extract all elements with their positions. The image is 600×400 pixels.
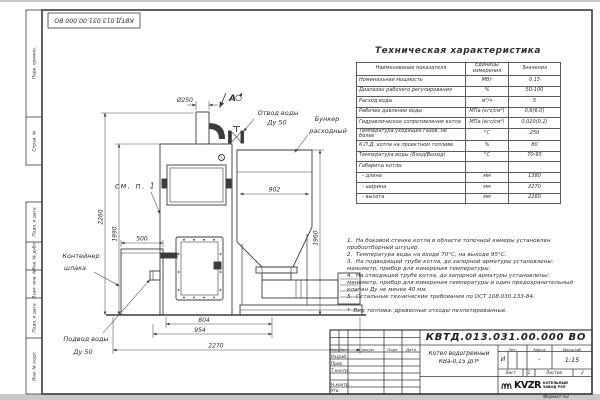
tech-cell: мм bbox=[466, 183, 509, 194]
scale-value: 1:15 bbox=[552, 356, 592, 364]
label-text: Ду 50 bbox=[266, 119, 286, 127]
tech-row: Расход водым³/ч5 bbox=[357, 97, 561, 108]
tech-cell: К.П.Д. котла на проектном топливе bbox=[357, 141, 466, 152]
tech-row: Температура уходящих газов, не более°С25… bbox=[357, 128, 561, 141]
tech-cell: 0,15 bbox=[509, 76, 561, 87]
outlet-valve bbox=[229, 127, 244, 144]
note-line: * Вид топлива: древесные отходы пеллетир… bbox=[347, 308, 585, 315]
stamp-inv-dubl: Инв. № дубл. bbox=[32, 241, 38, 270]
manufacturer-logo: KVZR КОТЕЛЬНЫЙ ЗАВОД РЭП bbox=[500, 377, 592, 393]
sheets-label: Листов bbox=[535, 370, 573, 375]
tech-cell: 2270 bbox=[509, 183, 561, 194]
tech-cell: °С bbox=[466, 151, 509, 162]
dimension-chimney-d250: Ø250 bbox=[176, 97, 218, 110]
lit-value: И bbox=[498, 356, 508, 363]
dimension-height-1990: 1990 bbox=[112, 144, 161, 315]
stamp-podp-data-1: Подп. и дата bbox=[32, 207, 38, 237]
tech-cell: м³/ч bbox=[466, 97, 509, 108]
stamp-podp-data-2: Подп. и дата bbox=[32, 303, 38, 333]
label-text: Отвод воды bbox=[258, 109, 299, 117]
scale-header: Масштаб bbox=[552, 347, 592, 352]
note-line: манометр, прибор для измерения температу… bbox=[347, 266, 585, 273]
tech-header-values: Значения bbox=[509, 63, 561, 76]
tech-row: Гидравлическое сопротивление котлаМПа (к… bbox=[357, 118, 561, 129]
tech-row: Габариты котла: bbox=[357, 162, 561, 173]
note-line: клапан Ду не менее 40 мм. bbox=[347, 287, 585, 294]
label-text: см. п. 1 bbox=[115, 182, 156, 191]
stamp-labels: Перв. примен. Справ. № Подп. и дата Инв.… bbox=[32, 17, 134, 381]
tech-cell: МВт bbox=[466, 76, 509, 87]
drawing-sheet: Перв. примен. Справ. № Подп. и дата Инв.… bbox=[0, 2, 600, 394]
tech-cell: Температура уходящих газов, не более bbox=[357, 128, 466, 141]
tech-header-units: Единицы измерения bbox=[466, 63, 509, 76]
dimension-width-804: 804 bbox=[166, 317, 272, 328]
tech-cell: - длина bbox=[357, 172, 466, 183]
sheet-value: 1 bbox=[523, 370, 535, 375]
tech-cell: МПа (кгс/см²) bbox=[466, 118, 509, 129]
row-label-razrab: Разраб. bbox=[331, 354, 361, 359]
mass-header: Масса bbox=[527, 347, 552, 352]
water-inlet-pipe bbox=[150, 271, 160, 280]
tech-cell bbox=[509, 162, 561, 173]
lit-header: Лит. bbox=[498, 347, 527, 352]
door-latch bbox=[214, 262, 221, 269]
note-line: манометр, прибор для измерения температу… bbox=[347, 280, 585, 287]
col-header-doc: N докум. bbox=[348, 347, 384, 352]
logo-subtitle-2: ЗАВОД РЭП bbox=[543, 385, 568, 389]
auger-feeder bbox=[240, 273, 362, 315]
dimension-text: 1990 bbox=[112, 226, 119, 241]
tech-row: - высотамм2260 bbox=[357, 193, 561, 204]
stamp-sprav: Справ. № bbox=[32, 130, 38, 151]
top-designation-rotated: КВТД.013.031.00.000 ВО bbox=[54, 17, 134, 24]
dimension-text: 804 bbox=[198, 317, 210, 324]
tech-cell: мм bbox=[466, 193, 509, 204]
sheet-label: Лист bbox=[498, 370, 523, 375]
tech-cell: Диапазон рабочего регулирования bbox=[357, 86, 466, 97]
label-text: Контейнер bbox=[62, 252, 99, 260]
note-line: 4. На отводящей трубе котла, до запорной… bbox=[347, 273, 585, 280]
tech-cell: Рабочее давление воды bbox=[357, 107, 466, 118]
dimension-container-500: 500 bbox=[121, 236, 163, 247]
stamp-perv-primen: Перв. примен. bbox=[32, 47, 38, 79]
tech-cell: - ширина bbox=[357, 183, 466, 194]
tech-row: Диапазон рабочего регулирования%50-100 bbox=[357, 86, 561, 97]
tech-cell: % bbox=[466, 86, 509, 97]
dimension-text: Ø250 bbox=[176, 97, 193, 104]
doc-title-line1: Котел водогрейный bbox=[421, 351, 497, 357]
label-see-note-1: см. п. 1 bbox=[115, 182, 160, 215]
conveyor-base bbox=[240, 305, 362, 315]
col-header-list: Лист bbox=[339, 347, 348, 352]
tech-cell: мм bbox=[466, 172, 509, 183]
tech-cell: 5 bbox=[509, 97, 561, 108]
note-line bbox=[347, 301, 585, 308]
note-line: 2. Температура воды на входе 70°С, на вы… bbox=[347, 252, 585, 259]
view-label: А bbox=[228, 94, 236, 104]
note-line: 3. На подводящей трубе котла, до запорно… bbox=[347, 259, 585, 266]
col-header-izm: Изм. bbox=[330, 347, 339, 352]
stamp-vzam-inv: Взам. инв. № bbox=[32, 269, 38, 299]
vent-fitting bbox=[219, 155, 225, 161]
label-text: Подвод воды bbox=[63, 335, 108, 343]
label-text: Ду 50 bbox=[72, 348, 92, 356]
tech-cell: 0,020(0,2) bbox=[509, 118, 561, 129]
title-block-designation: КВТД.013.031.00.000 ВО bbox=[421, 332, 591, 343]
label-water-inlet: Подвод воды Ду 50 bbox=[63, 280, 150, 357]
rotated-symbol-icon bbox=[236, 95, 242, 101]
tech-cell: Температура воды (Вход/Выход) bbox=[357, 151, 466, 162]
tech-cell: 1380 bbox=[509, 172, 561, 183]
row-label-tkontr: Т.контр. bbox=[331, 368, 361, 373]
col-header-podp: Подп. bbox=[384, 347, 402, 352]
tech-cell: 70-95 bbox=[509, 151, 561, 162]
tech-row: К.П.Д. котла на проектном топливе%80 bbox=[357, 141, 561, 152]
format-label: Формат А3 bbox=[520, 395, 592, 400]
boiler-body bbox=[150, 144, 232, 315]
tech-cell: Расход воды bbox=[357, 97, 466, 108]
tech-row: - длинамм1380 bbox=[357, 172, 561, 183]
dimension-height-1960: 1960 bbox=[312, 150, 324, 315]
tech-cell: 0,6(6,0) bbox=[509, 107, 561, 118]
tech-cell bbox=[466, 162, 509, 173]
tech-header-name: Наименование показателя bbox=[357, 63, 466, 76]
label-fuel-hopper: Бункер расходный bbox=[295, 115, 347, 153]
label-text: Бункер bbox=[315, 115, 340, 123]
label-text: расходный bbox=[308, 127, 347, 135]
row-label-nkontr: Н.контр. bbox=[331, 382, 361, 387]
tech-row: Номинальная мощностьМВт0,15 bbox=[357, 76, 561, 87]
mass-value: - bbox=[527, 356, 552, 363]
dimension-text: 500 bbox=[136, 236, 148, 243]
tech-cell: 2260 bbox=[509, 193, 561, 204]
coil-icon bbox=[500, 379, 512, 391]
dimension-text: 1960 bbox=[313, 230, 320, 245]
col-header-data: Дата bbox=[402, 347, 420, 352]
row-label-prov: Пров. bbox=[331, 361, 361, 366]
logo-text: KVZR bbox=[514, 380, 541, 391]
label-slag-container: Контейнер шлака bbox=[62, 252, 119, 286]
sheets-value: 2 bbox=[573, 370, 592, 375]
dimension-text: 954 bbox=[194, 327, 206, 334]
dimension-text: 902 bbox=[269, 187, 281, 194]
row-label-utv: Утв. bbox=[331, 388, 361, 393]
tech-cell: МПа (кгс/см²) bbox=[466, 107, 509, 118]
label-water-outlet: Отвод воды Ду 50 bbox=[244, 109, 299, 132]
tech-characteristics-table: Наименование показателя Единицы измерени… bbox=[356, 62, 561, 204]
tech-cell: Номинальная мощность bbox=[357, 76, 466, 87]
notes-block: 1. На боковой стенке котла в области топ… bbox=[347, 238, 585, 315]
dimension-bunker-902: 902 bbox=[240, 187, 309, 195]
boiler-lower-door bbox=[161, 237, 223, 300]
boiler-top-door bbox=[162, 165, 231, 205]
stamp-inv-podl: Инв. № подл. bbox=[32, 351, 38, 381]
tech-cell: 250 bbox=[509, 128, 561, 141]
page: Перв. примен. Справ. № Подп. и дата Инв.… bbox=[0, 0, 600, 400]
doc-title-line2: КВа-0,15 ДП* bbox=[421, 359, 497, 365]
dimension-text: 2260 bbox=[98, 209, 105, 224]
dimension-width-2270: 2270 bbox=[113, 317, 360, 354]
chimney bbox=[196, 112, 225, 144]
tech-cell: °С bbox=[466, 128, 509, 141]
label-text: шлака bbox=[64, 264, 86, 272]
view-arrow-a: А bbox=[220, 93, 243, 108]
dimension-width-954: 954 bbox=[153, 324, 272, 338]
tech-header-row: Наименование показателя Единицы измерени… bbox=[357, 63, 561, 76]
note-line: пробоотборный штуцер. bbox=[347, 245, 585, 252]
dimension-text: 2270 bbox=[208, 343, 223, 350]
tech-row: Рабочее давление водыМПа (кгс/см²)0,6(6,… bbox=[357, 107, 561, 118]
tech-cell: % bbox=[466, 141, 509, 152]
tech-table-title: Техническая характеристика bbox=[356, 46, 560, 56]
tech-row: Температура воды (Вход/Выход)°С70-95 bbox=[357, 151, 561, 162]
tech-cell: Габариты котла: bbox=[357, 162, 466, 173]
tech-cell: 50-100 bbox=[509, 86, 561, 97]
tech-cell: - высота bbox=[357, 193, 466, 204]
tech-row: - ширинамм2270 bbox=[357, 183, 561, 194]
outlet-elbow bbox=[209, 123, 225, 139]
note-line: 1. На боковой стенке котла в области топ… bbox=[347, 238, 585, 245]
tech-cell: Гидравлическое сопротивление котла bbox=[357, 118, 466, 129]
tech-cell: 80 bbox=[509, 141, 561, 152]
note-line: 5. Остальные технические требования по О… bbox=[347, 294, 585, 301]
